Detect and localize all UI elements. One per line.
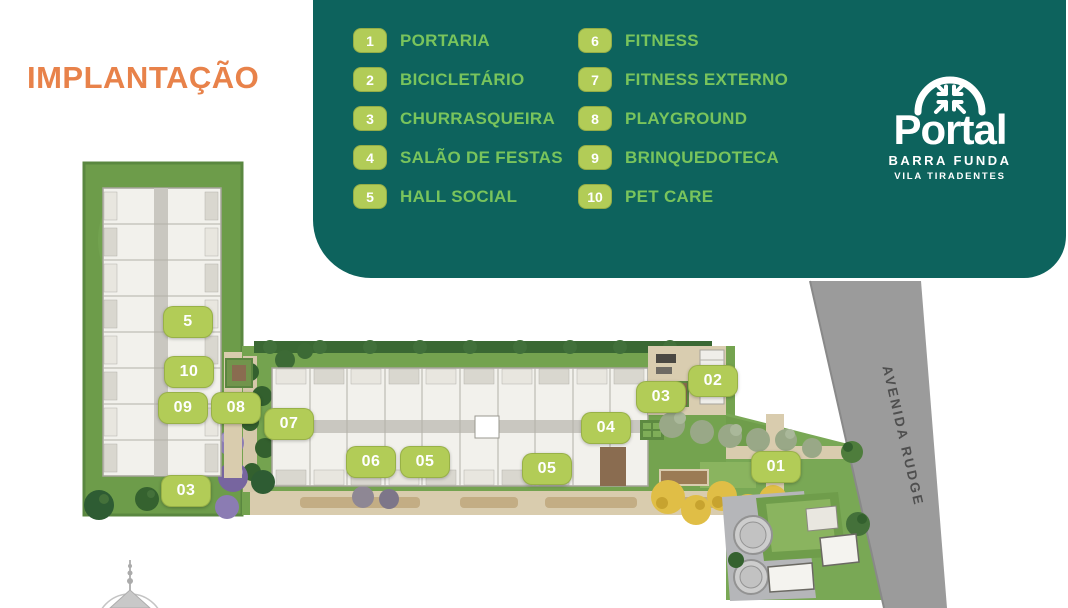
legend-label: CHURRASQUEIRA [400, 109, 555, 129]
legend-item-playground: 8 PLAYGROUND [578, 106, 788, 131]
map-badge-03: 03 [161, 475, 211, 507]
legend-label: HALL SOCIAL [400, 187, 517, 207]
legend-number-badge: 3 [353, 106, 387, 131]
map-badge-04: 04 [581, 412, 631, 444]
map-badge-5: 5 [163, 306, 213, 338]
legend-number-badge: 9 [578, 145, 612, 170]
legend-number-badge: 7 [578, 67, 612, 92]
legend-number-badge: 6 [578, 28, 612, 53]
map-badge-09: 09 [158, 392, 208, 424]
page-title: IMPLANTAÇÃO [27, 60, 259, 96]
legend-item-bicicletario: 2 BICICLETÁRIO [353, 67, 563, 92]
map-badge-02: 02 [688, 365, 738, 397]
legend-label: FITNESS EXTERNO [625, 70, 788, 90]
legend-item-churrasqueira: 3 CHURRASQUEIRA [353, 106, 563, 131]
legend-number-badge: 5 [353, 184, 387, 209]
legend-item-salao-de-festas: 4 SALÃO DE FESTAS [353, 145, 563, 170]
logo-location: BARRA FUNDA [861, 153, 1039, 168]
legend-number-badge: 1 [353, 28, 387, 53]
legend-column-2: 6 FITNESS 7 FITNESS EXTERNO 8 PLAYGROUND… [578, 28, 788, 223]
legend-label: FITNESS [625, 31, 699, 51]
site-plan-slide: AVENIDA RUDGE 5100908070605050403020103 … [0, 0, 1068, 608]
legend-item-hall-social: 5 HALL SOCIAL [353, 184, 563, 209]
legend-label: PLAYGROUND [625, 109, 747, 129]
map-badge-05: 05 [400, 446, 450, 478]
legend-panel: 1 PORTARIA 2 BICICLETÁRIO 3 CHURRASQUEIR… [313, 0, 1066, 278]
map-badge-10: 10 [164, 356, 214, 388]
brand-logo: Portal BARRA FUNDA VILA TIRADENTES [861, 64, 1039, 182]
compass-icon [96, 560, 164, 608]
legend-number-badge: 10 [578, 184, 612, 209]
map-badge-08: 08 [211, 392, 261, 424]
legend-item-portaria: 1 PORTARIA [353, 28, 563, 53]
map-badge-01: 01 [751, 451, 801, 483]
legend-label: SALÃO DE FESTAS [400, 148, 563, 168]
legend-item-fitness: 6 FITNESS [578, 28, 788, 53]
legend-item-fitness-externo: 7 FITNESS EXTERNO [578, 67, 788, 92]
legend-item-pet-care: 10 PET CARE [578, 184, 788, 209]
map-badge-06: 06 [346, 446, 396, 478]
legend-column-1: 1 PORTARIA 2 BICICLETÁRIO 3 CHURRASQUEIR… [353, 28, 563, 223]
logo-name: Portal [861, 110, 1039, 150]
legend-item-brinquedoteca: 9 BRINQUEDOTECA [578, 145, 788, 170]
legend-number-badge: 4 [353, 145, 387, 170]
legend-label: PET CARE [625, 187, 713, 207]
map-badge-03: 03 [636, 381, 686, 413]
legend-number-badge: 8 [578, 106, 612, 131]
top-hedge [254, 340, 712, 354]
map-badge-05: 05 [522, 453, 572, 485]
legend-label: PORTARIA [400, 31, 490, 51]
logo-sublocation: VILA TIRADENTES [861, 171, 1039, 182]
map-badge-07: 07 [264, 408, 314, 440]
legend-label: BICICLETÁRIO [400, 70, 524, 90]
legend-label: BRINQUEDOTECA [625, 148, 779, 168]
legend-number-badge: 2 [353, 67, 387, 92]
